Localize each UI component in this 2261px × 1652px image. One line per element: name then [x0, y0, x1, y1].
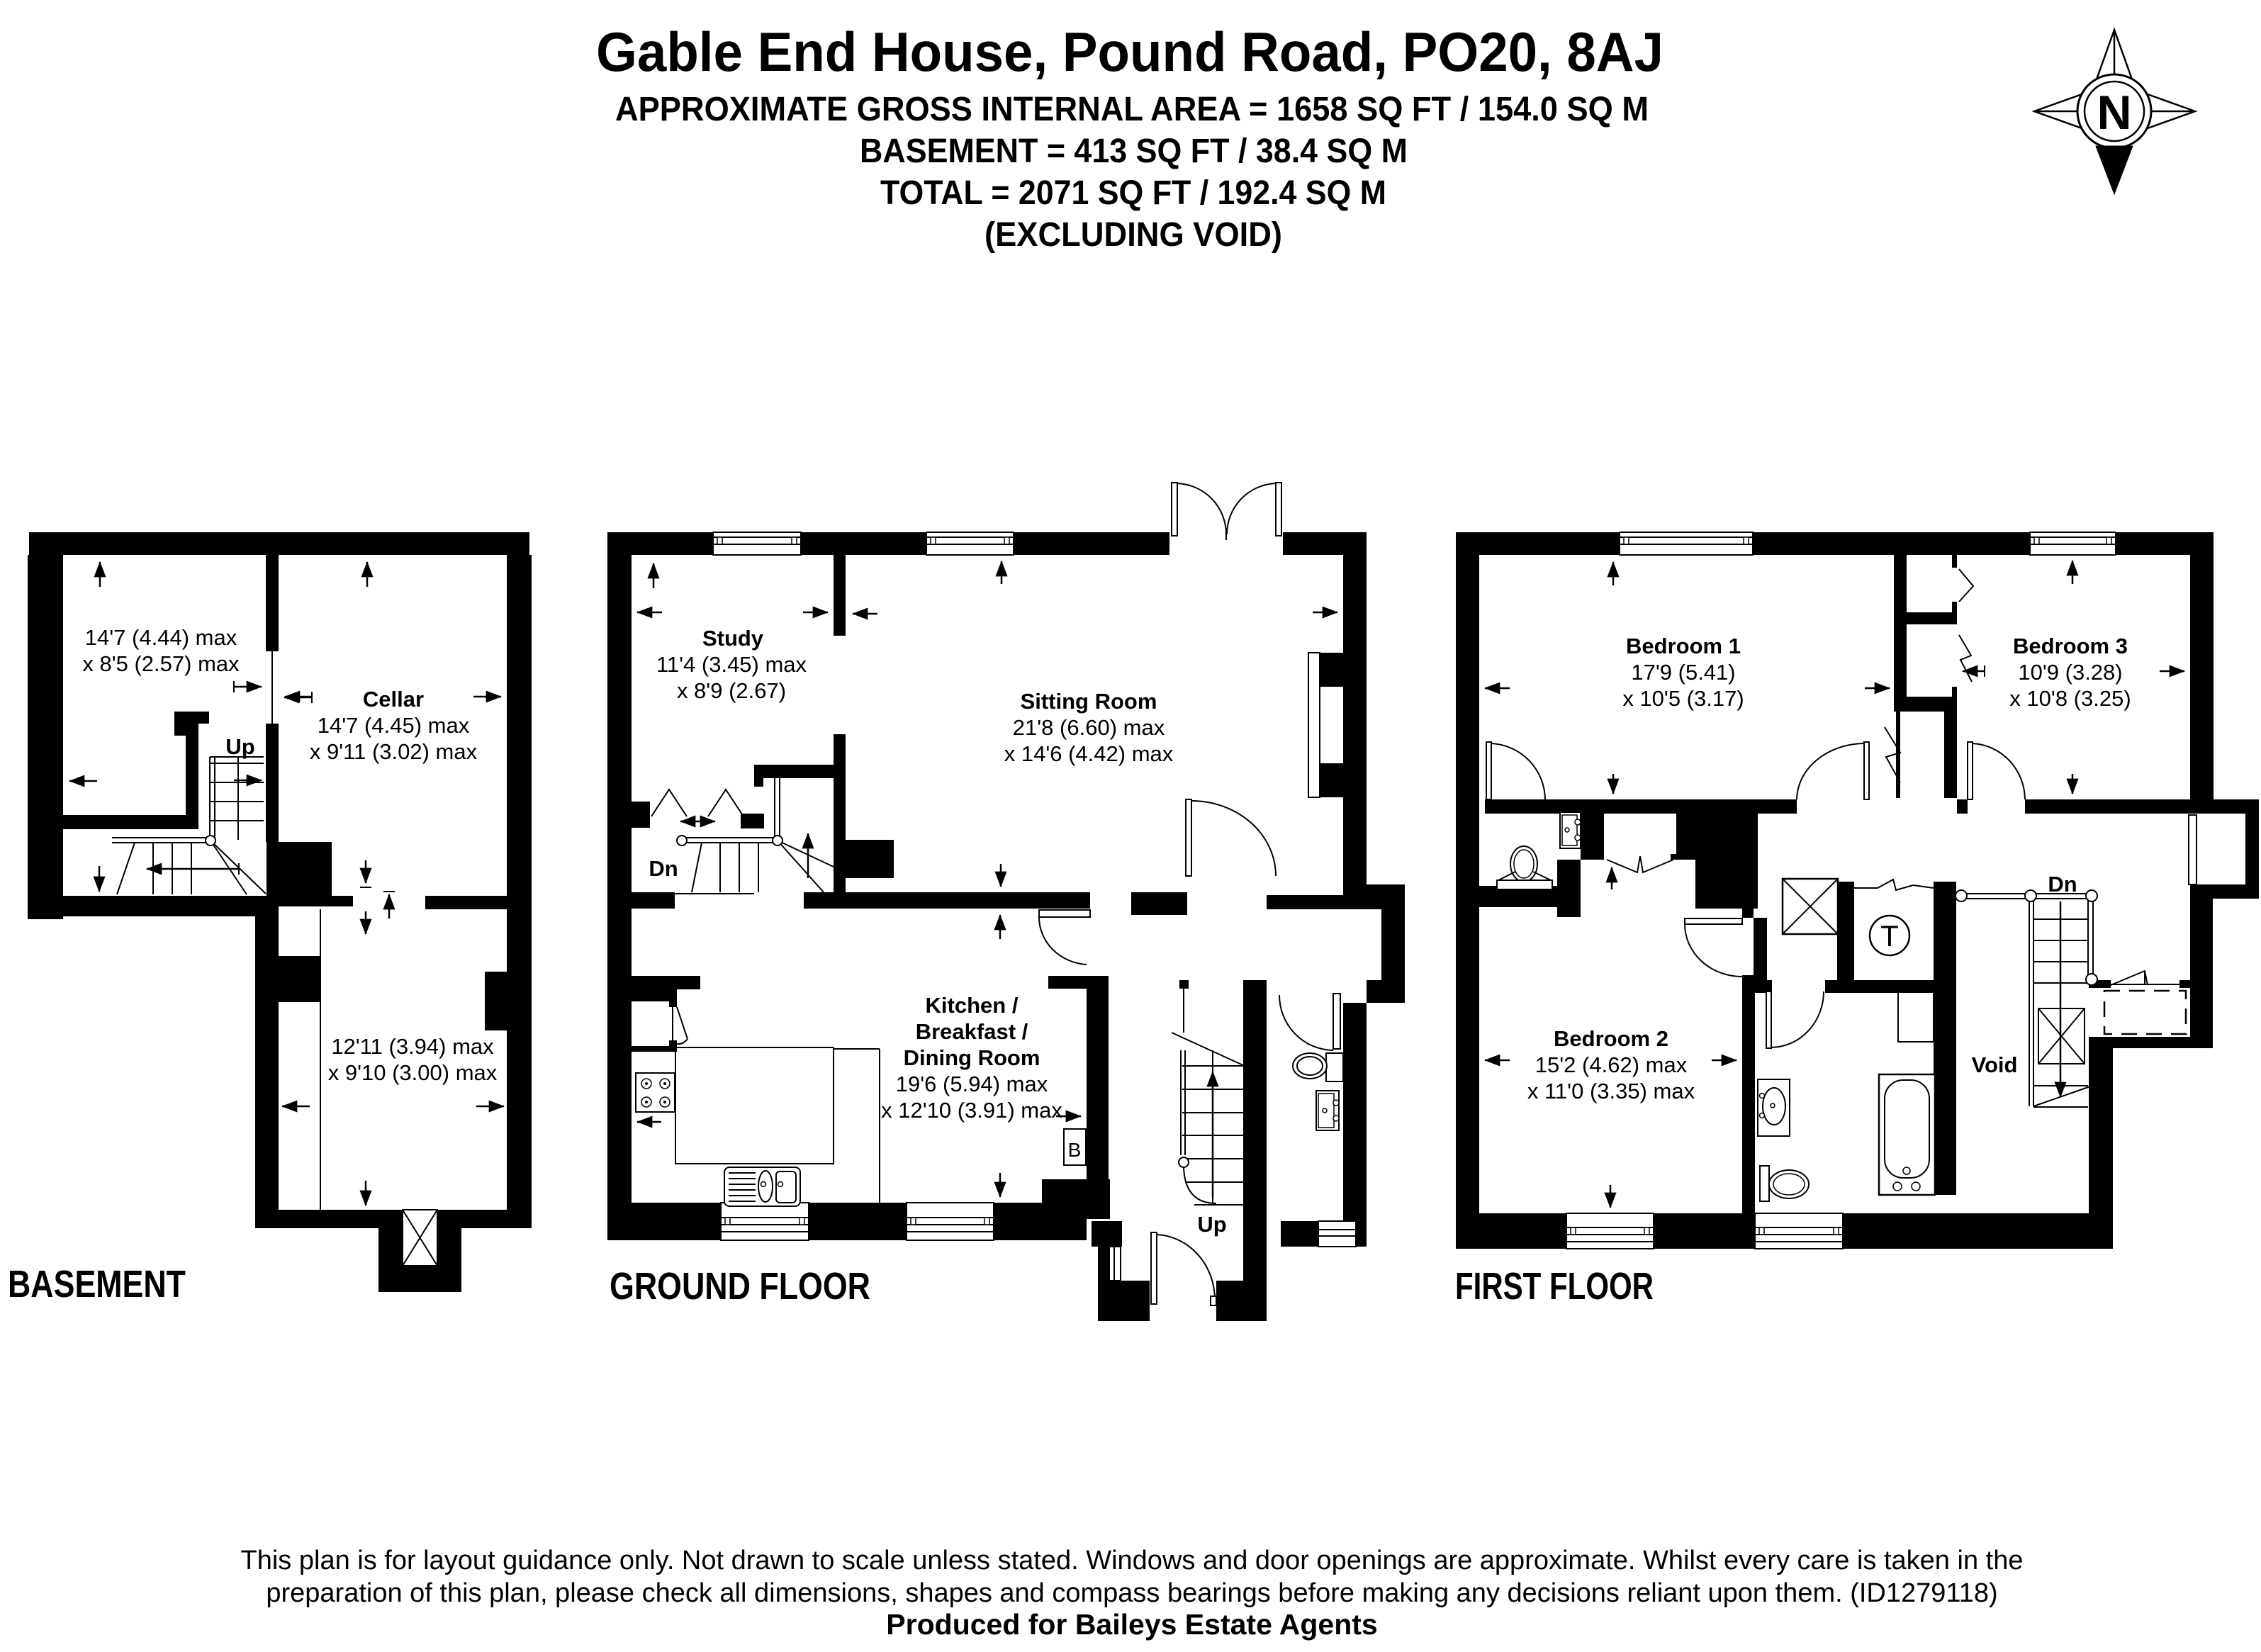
svg-text:(EXCLUDING VOID): (EXCLUDING VOID) — [984, 216, 1282, 254]
svg-text:Void: Void — [1972, 1052, 2018, 1077]
svg-text:x 10'8 (3.25): x 10'8 (3.25) — [2009, 686, 2131, 711]
svg-text:17'9 (5.41): 17'9 (5.41) — [1631, 660, 1735, 685]
svg-text:preparation of this plan, plea: preparation of this plan, please check a… — [266, 1578, 1997, 1608]
svg-text:Dn: Dn — [649, 856, 678, 881]
svg-text:Sitting Room: Sitting Room — [1021, 689, 1157, 714]
svg-text:B: B — [1068, 1139, 1082, 1161]
svg-text:BASEMENT = 413 SQ FT / 38.4 SQ: BASEMENT = 413 SQ FT / 38.4 SQ M — [860, 133, 1408, 170]
svg-text:x 10'5 (3.17): x 10'5 (3.17) — [1622, 686, 1744, 711]
svg-text:x 14'6 (4.42) max: x 14'6 (4.42) max — [1004, 741, 1174, 766]
svg-text:14'7 (4.45) max: 14'7 (4.45) max — [318, 713, 470, 738]
svg-text:11'4 (3.45) max: 11'4 (3.45) max — [656, 652, 807, 677]
svg-text:Up: Up — [225, 734, 254, 759]
svg-text:Up: Up — [1197, 1212, 1226, 1237]
svg-text:x 12'10 (3.91) max: x 12'10 (3.91) max — [881, 1098, 1062, 1123]
svg-text:T: T — [1880, 919, 1899, 953]
svg-text:Bedroom 2: Bedroom 2 — [1554, 1026, 1668, 1051]
svg-text:N: N — [2097, 86, 2131, 140]
svg-text:Study: Study — [702, 626, 764, 651]
svg-text:Gable End House, Pound Road, P: Gable End House, Pound Road, PO20, 8AJ — [596, 21, 1664, 83]
svg-text:12'11 (3.94) max: 12'11 (3.94) max — [331, 1034, 494, 1059]
svg-text:x 9'10 (3.00) max: x 9'10 (3.00) max — [328, 1060, 498, 1085]
svg-text:x 9'11 (3.02) max: x 9'11 (3.02) max — [310, 739, 478, 764]
svg-text:GROUND FLOOR: GROUND FLOOR — [610, 1265, 870, 1308]
svg-text:14'7 (4.44) max: 14'7 (4.44) max — [85, 625, 237, 650]
svg-text:x 8'9 (2.67): x 8'9 (2.67) — [677, 678, 786, 703]
svg-text:Bedroom 3: Bedroom 3 — [2013, 634, 2128, 658]
svg-text:APPROXIMATE GROSS INTERNAL ARE: APPROXIMATE GROSS INTERNAL AREA = 1658 S… — [615, 91, 1649, 128]
svg-text:Bedroom 1: Bedroom 1 — [1626, 634, 1741, 658]
svg-text:Breakfast /: Breakfast / — [916, 1019, 1028, 1044]
svg-text:19'6 (5.94) max: 19'6 (5.94) max — [896, 1072, 1048, 1096]
svg-text:21'8 (6.60) max: 21'8 (6.60) max — [1013, 715, 1165, 740]
svg-text:10'9 (3.28): 10'9 (3.28) — [2018, 660, 2122, 685]
svg-text:Produced for Baileys Estate Ag: Produced for Baileys Estate Agents — [886, 1608, 1377, 1641]
svg-text:This plan is for layout guidan: This plan is for layout guidance only. N… — [241, 1546, 2024, 1575]
svg-text:BASEMENT: BASEMENT — [8, 1263, 186, 1305]
svg-text:Kitchen /: Kitchen / — [926, 993, 1019, 1018]
svg-text:x 11'0 (3.35) max: x 11'0 (3.35) max — [1527, 1079, 1695, 1103]
svg-text:TOTAL = 2071 SQ FT / 192.4 SQ: TOTAL = 2071 SQ FT / 192.4 SQ M — [880, 174, 1386, 212]
svg-text:FIRST FLOOR: FIRST FLOOR — [1455, 1265, 1654, 1308]
svg-text:15'2 (4.62) max: 15'2 (4.62) max — [1535, 1052, 1688, 1077]
svg-text:Dn: Dn — [2048, 872, 2077, 897]
svg-text:Cellar: Cellar — [363, 687, 424, 712]
svg-text:x 8'5 (2.57) max: x 8'5 (2.57) max — [82, 651, 240, 676]
svg-text:Dining Room: Dining Room — [904, 1045, 1040, 1070]
